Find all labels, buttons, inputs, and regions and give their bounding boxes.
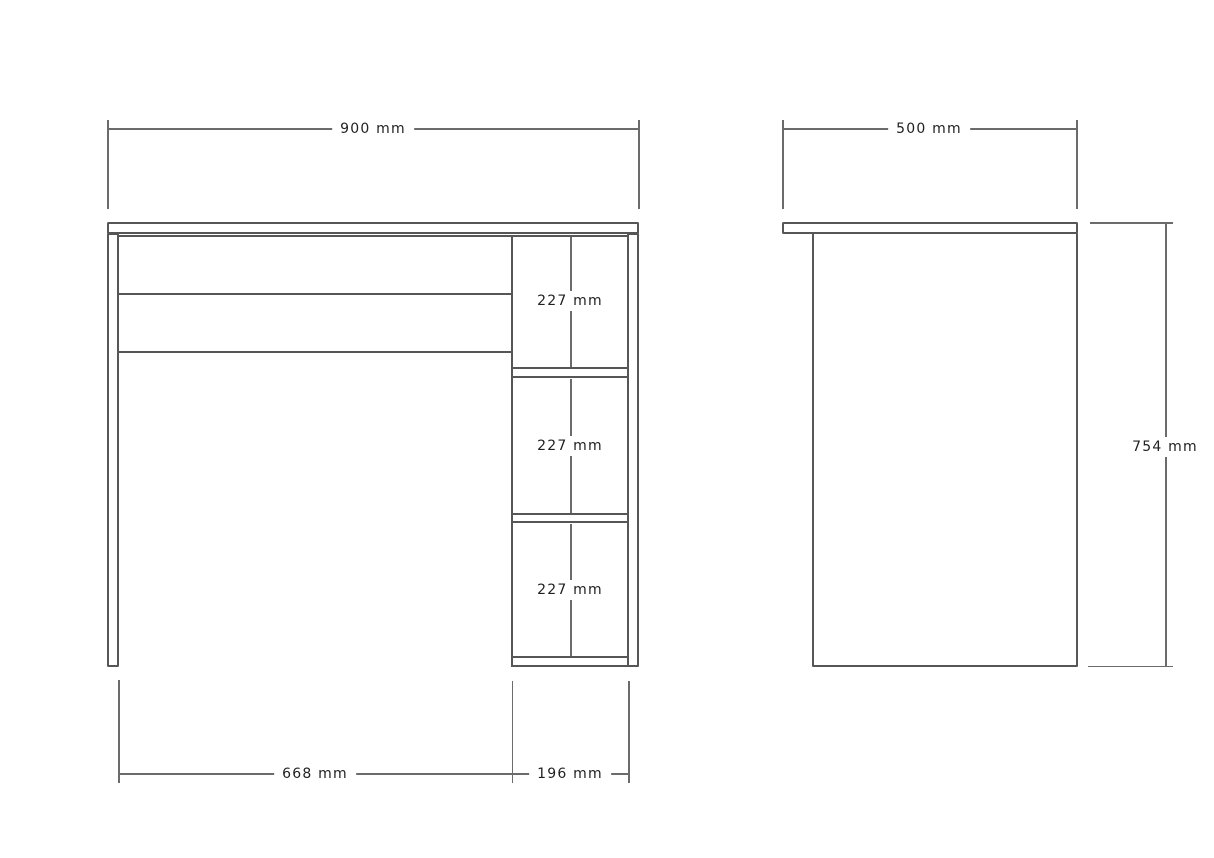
- front-opening-dim-label: 668 mm: [274, 764, 356, 784]
- side-height-dim-extension-bottom: [1088, 666, 1173, 668]
- shelf-board-1: [511, 367, 629, 378]
- front-desktop: [107, 222, 639, 234]
- technical-drawing-canvas: 900 mm 227 mm 227 mm 227 mm 668 mm 196 m…: [0, 0, 1214, 858]
- front-left-leg: [107, 233, 119, 667]
- front-shelf-width-dim-label: 196 mm: [529, 764, 611, 784]
- side-desktop: [782, 222, 1078, 234]
- side-height-dim-label: 754 mm: [1124, 437, 1206, 457]
- side-body-panel: [812, 233, 1078, 667]
- front-right-side-panel: [627, 233, 639, 667]
- front-opening-dim-extension-left: [118, 680, 120, 783]
- front-width-dim-extension-left: [107, 120, 109, 209]
- front-back-panel-top-line: [119, 293, 512, 295]
- front-width-dim-extension-right: [638, 120, 640, 209]
- front-opening-dim-extension-middle: [512, 681, 514, 783]
- compartment-1-dim-label: 227 mm: [529, 291, 611, 311]
- front-opening-dim-extension-right: [628, 681, 630, 783]
- side-height-dim-extension-top: [1090, 222, 1173, 224]
- compartment-2-dim-label: 227 mm: [529, 436, 611, 456]
- shelf-bottom-board: [511, 656, 639, 667]
- shelf-left-wall: [511, 235, 513, 667]
- side-depth-dim-extension-right: [1076, 120, 1078, 209]
- side-depth-dim-extension-left: [782, 120, 784, 209]
- compartment-3-dim-label: 227 mm: [529, 580, 611, 600]
- front-width-dim-label: 900 mm: [332, 119, 414, 139]
- front-back-panel-bottom-line: [119, 351, 512, 353]
- front-desktop-underside-line: [119, 235, 627, 237]
- shelf-board-2: [511, 513, 629, 523]
- side-depth-dim-label: 500 mm: [888, 119, 970, 139]
